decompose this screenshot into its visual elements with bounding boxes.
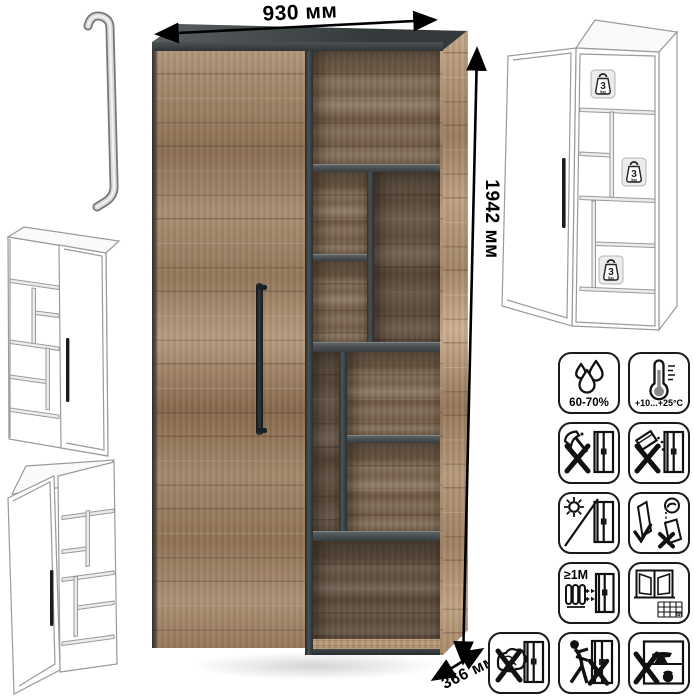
weight-badge: 3 kg — [599, 256, 623, 284]
humidity-icon: 60-70% — [561, 355, 617, 411]
icon-no-heavy-objects — [628, 632, 690, 694]
calendar-day: 21 — [676, 612, 682, 617]
door-handle — [256, 283, 263, 435]
wardrobe-glyph — [596, 574, 614, 612]
wardrobe-glyph — [595, 432, 614, 472]
width-dimension-label: 930 мм — [238, 0, 363, 28]
ventilation-icon: 21 — [631, 565, 687, 621]
icon-temperature: +10...+25°C — [628, 352, 690, 414]
weight-unit: kg — [631, 177, 637, 183]
no-spilling-icon — [631, 425, 687, 481]
weight-badge: 3 kg — [591, 70, 615, 98]
person-glyph — [570, 640, 588, 683]
cabinet-top-edge — [152, 42, 443, 51]
weight-badge: 3 kg — [622, 158, 646, 186]
wf1-door-handle — [562, 158, 566, 228]
cross-mark — [567, 446, 588, 471]
wf1-right-side — [659, 32, 677, 330]
wireframe-interior-weights: 3 kg 3 kg 3 kg — [498, 8, 694, 346]
door-edge-shadow — [152, 51, 158, 648]
product-spec-sheet: 3 kg 3 kg 3 kg — [0, 0, 694, 700]
height-dimension-label: 1942 мм — [480, 176, 502, 262]
do-not-push-icon — [561, 635, 617, 691]
compartment-back — [347, 352, 440, 435]
radiator-glyph — [566, 585, 585, 604]
compartment-back — [313, 261, 367, 342]
detail-circle — [665, 499, 679, 513]
no-wet-cloth-icon — [491, 635, 547, 691]
temperature-icon: +10...+25°C — [631, 355, 687, 411]
wardrobe-glyph — [595, 502, 614, 542]
humidity-value: 60-70% — [569, 397, 609, 409]
handle-profile-drawing — [28, 4, 120, 226]
compartment-back — [374, 172, 440, 342]
distance-value: ≥1M — [564, 568, 588, 582]
cabinet-front — [152, 42, 443, 655]
cross-mark — [637, 446, 658, 471]
wf2-door-handle — [66, 338, 69, 402]
center-divider — [305, 51, 313, 655]
icon-no-direct-sunlight — [558, 492, 620, 554]
panel-upright — [638, 502, 651, 536]
cabinet-side-panel — [443, 30, 468, 655]
front-right-edge — [440, 51, 443, 655]
bottom-shelf-floor — [313, 639, 440, 649]
compartment-back — [313, 172, 367, 254]
heater-distance-icon: ≥1M — [561, 565, 617, 621]
temperature-value: +10...+25°C — [635, 398, 684, 408]
icon-no-sharp-tools — [558, 422, 620, 484]
wardrobe-glyph — [665, 432, 684, 472]
icon-carry-doors-upright — [628, 492, 690, 554]
cabinet-door — [152, 51, 305, 648]
icon-humidity: 60-70% — [558, 352, 620, 414]
icon-no-wet-cloth — [488, 632, 550, 694]
no-sunlight-icon — [561, 495, 617, 551]
no-heavy-objects-icon — [631, 635, 687, 691]
weight-unit: kg — [608, 275, 614, 281]
carry-doors-icon — [631, 495, 687, 551]
wf1-top-face — [576, 20, 677, 52]
icon-acclimatize-ventilate: 21 — [628, 562, 690, 624]
compartment-back — [347, 443, 440, 531]
icon-distance-from-heaters: ≥1M — [558, 562, 620, 624]
icon-do-not-push — [558, 632, 620, 694]
wf3-door-handle — [50, 570, 53, 626]
wireframe-view-left-side — [2, 458, 128, 700]
vertical-divider — [339, 352, 347, 531]
vertical-divider — [367, 172, 374, 342]
compartment-back — [313, 51, 440, 164]
compartment-back — [313, 352, 339, 531]
compartment-back — [313, 541, 440, 639]
window-glyph — [634, 571, 675, 598]
sun-glyph — [564, 497, 584, 517]
open-shelving — [313, 51, 440, 655]
wardrobe-glyph — [525, 642, 544, 682]
no-sharp-tools-icon — [561, 425, 617, 481]
plinth — [313, 649, 440, 655]
icon-no-spilling — [628, 422, 690, 484]
wireframe-view-right-side — [2, 226, 126, 464]
calendar-glyph: 21 — [658, 602, 682, 617]
weight-unit: kg — [600, 89, 606, 95]
